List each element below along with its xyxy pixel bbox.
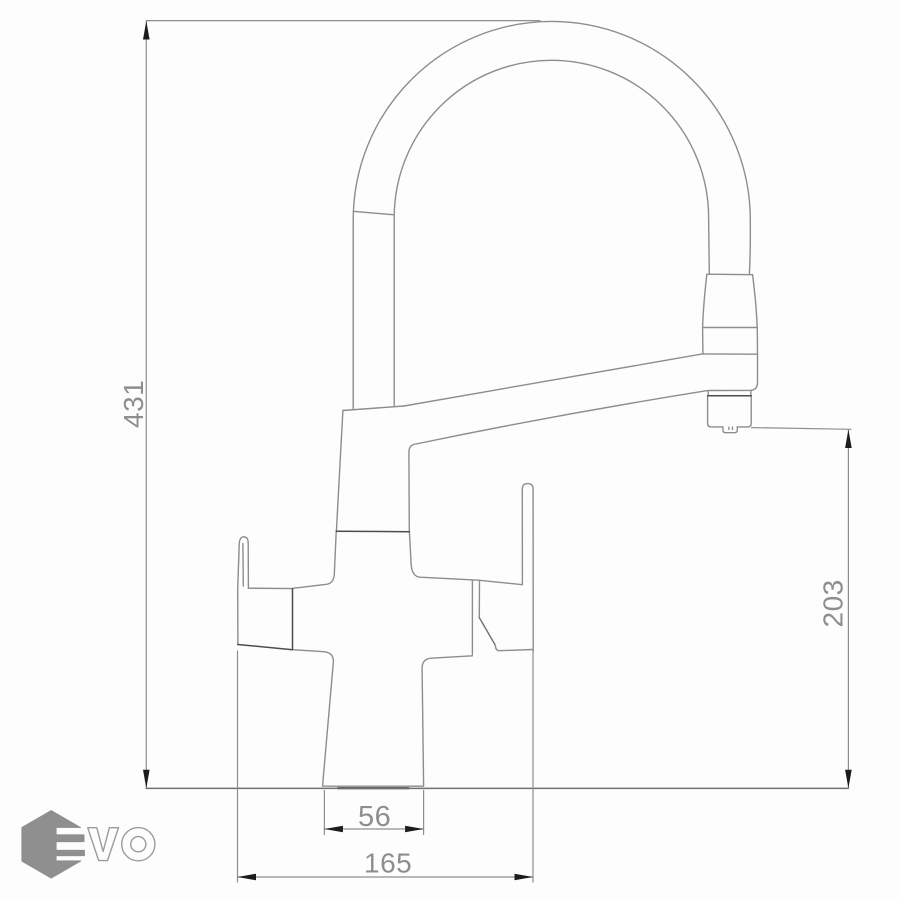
svg-text:431: 431	[118, 380, 149, 428]
svg-text:165: 165	[364, 848, 412, 879]
svg-text:56: 56	[358, 801, 391, 833]
svg-text:203: 203	[818, 579, 849, 627]
